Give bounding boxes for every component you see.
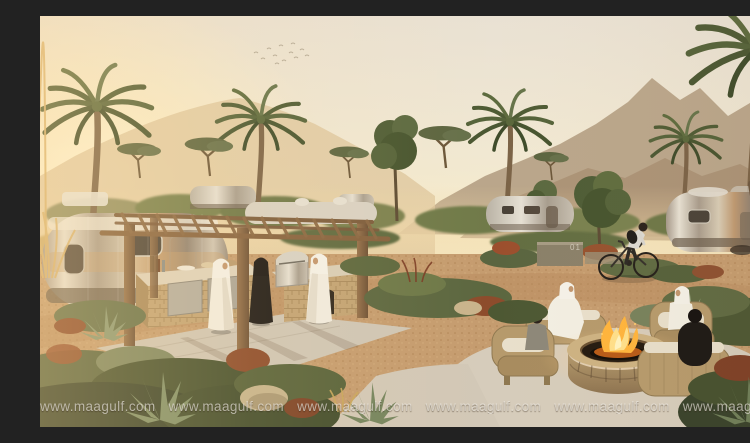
resort-rendering: www.maagulf.comwww.maagulf.comwww.maagul… [40, 16, 750, 427]
scene-canvas [40, 16, 750, 427]
pergola-post [150, 218, 158, 298]
airstream-trailer-right [666, 187, 750, 255]
pergola-post [237, 228, 249, 356]
airstream-trailer-mid [486, 196, 574, 232]
bbq-grill [276, 251, 308, 287]
